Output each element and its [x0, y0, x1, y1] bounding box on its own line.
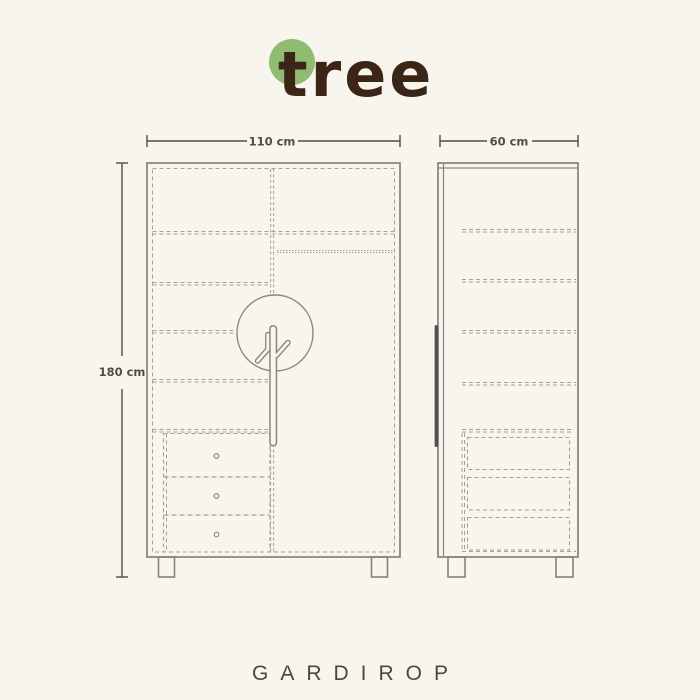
side-cabinet-outline — [438, 163, 578, 557]
side-shelf-lines — [462, 230, 576, 552]
product-spec-sheet: tree 110 cm 60 cm 180 cm — [0, 0, 700, 700]
drawer-knob-3 — [214, 532, 219, 537]
side-left-leg — [448, 557, 465, 577]
side-handle-bar — [435, 325, 439, 447]
side-drawer-block — [462, 433, 570, 552]
drawer-knob-1 — [214, 454, 219, 459]
side-drawer-2 — [468, 478, 570, 511]
side-right-leg — [556, 557, 573, 577]
side-view — [435, 163, 578, 577]
product-title: GARDIROP — [0, 662, 700, 686]
height-dimension-label: 180 cm — [99, 365, 146, 379]
side-drawer-3 — [468, 518, 570, 551]
width-dimension-label: 110 cm — [249, 135, 296, 149]
drawer-knob-2 — [214, 494, 219, 499]
front-drawer-block — [164, 434, 271, 553]
depth-dimension-label: 60 cm — [490, 135, 529, 149]
hanging-rod-line — [277, 251, 395, 253]
front-left-leg — [159, 557, 175, 577]
side-drawer-1 — [468, 438, 570, 470]
front-right-leg — [372, 557, 388, 577]
front-view — [147, 163, 400, 577]
drawer-block-outline — [164, 434, 271, 553]
wardrobe-technical-drawing: 110 cm 60 cm 180 cm — [0, 0, 700, 700]
